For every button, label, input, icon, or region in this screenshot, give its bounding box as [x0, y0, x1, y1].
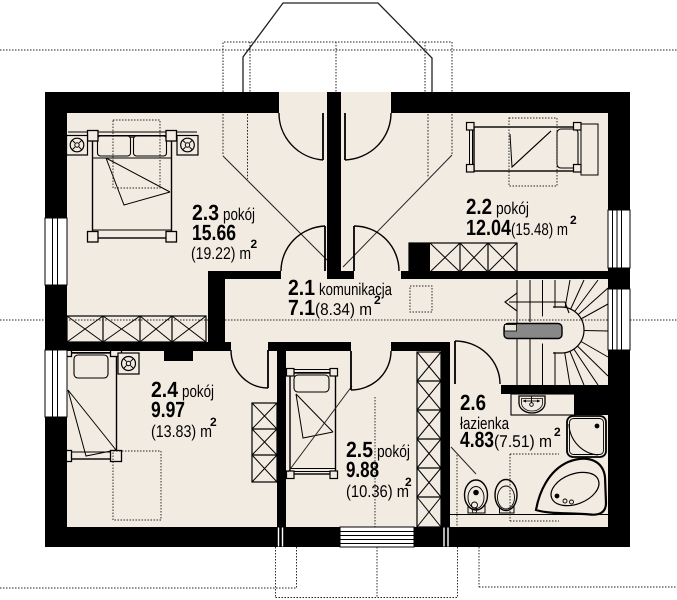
svg-text:9.88: 9.88: [346, 457, 379, 482]
svg-text:2: 2: [374, 293, 381, 307]
svg-text:2: 2: [554, 425, 561, 439]
svg-text:2.6: 2.6: [460, 390, 486, 415]
svg-text:pokój: pokój: [377, 442, 410, 461]
svg-text:2: 2: [210, 415, 217, 429]
svg-text:(19.22) m: (19.22) m: [191, 244, 251, 263]
svg-text:(8.34) m: (8.34) m: [315, 300, 372, 319]
svg-text:4.83: 4.83: [460, 427, 494, 452]
svg-text:(7.51) m: (7.51) m: [494, 432, 552, 451]
svg-text:9.97: 9.97: [151, 397, 185, 422]
svg-text:(10.36) m: (10.36) m: [346, 482, 409, 501]
svg-text:15.66: 15.66: [192, 220, 236, 245]
svg-text:(15.48) m: (15.48) m: [511, 220, 568, 239]
svg-text:2: 2: [251, 237, 258, 251]
svg-text:2: 2: [405, 475, 412, 489]
svg-text:12.04: 12.04: [466, 215, 512, 240]
svg-text:(13.83) m: (13.83) m: [151, 422, 212, 441]
svg-text:2: 2: [570, 213, 577, 227]
svg-text:pokój: pokój: [182, 382, 214, 401]
svg-text:7.1: 7.1: [288, 295, 315, 320]
svg-text:komunikacja: komunikacja: [319, 280, 392, 299]
